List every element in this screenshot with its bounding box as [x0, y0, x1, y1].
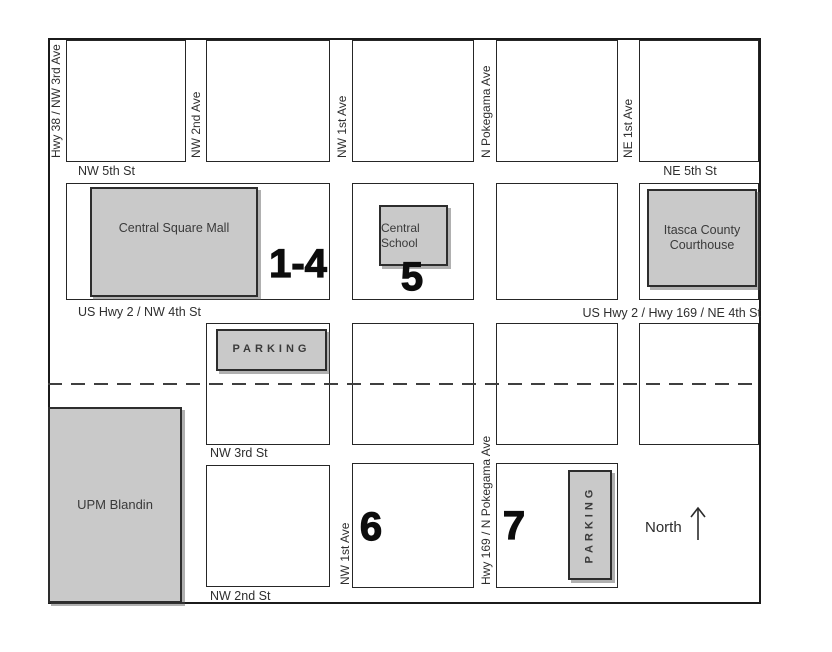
street-label-ne-5th-st: NE 5th St	[660, 164, 720, 178]
building-label: UPM Blandin	[77, 497, 153, 513]
street-label-us-hwy2-hwy169-ne-4th-st: US Hwy 2 / Hwy 169 / NE 4th St	[582, 306, 761, 320]
city-block	[66, 40, 186, 162]
avenue-label-n-pokegama-ave: N Pokegama Ave	[480, 65, 493, 158]
city-block	[206, 40, 330, 162]
building-label: Central School	[381, 221, 446, 250]
building-central-square-mall: Central Square Mall	[90, 187, 258, 297]
marker-sites-1-4: 1-4	[266, 243, 330, 285]
avenue-label-hwy38-nw-3rd-ave: Hwy 38 / NW 3rd Ave	[50, 44, 63, 158]
parking-lot-north: PARKING	[216, 329, 327, 371]
city-block	[352, 40, 474, 162]
marker-site-7: 7	[494, 505, 534, 547]
avenue-label-ne-1st-ave: NE 1st Ave	[622, 99, 635, 158]
building-label: Central Square Mall	[119, 221, 229, 236]
city-block	[496, 40, 618, 162]
avenue-label-hwy169-n-pokegama-ave: Hwy 169 / N Pokegama Ave	[480, 436, 493, 585]
street-label-nw-3rd-st: NW 3rd St	[210, 446, 268, 460]
city-block	[639, 40, 759, 162]
city-block	[496, 183, 618, 300]
avenue-label-nw-1st-ave-north: NW 1st Ave	[336, 96, 349, 158]
street-label-us-hwy2-nw-4th-st: US Hwy 2 / NW 4th St	[78, 305, 201, 319]
compass-north-label: North	[645, 519, 682, 536]
avenue-label-nw-2nd-ave: NW 2nd Ave	[190, 92, 203, 158]
parking-lot-south: PARKING	[568, 470, 612, 580]
marker-site-6: 6	[351, 506, 391, 548]
dashed-boundary-line	[48, 383, 761, 385]
building-label: Itasca County Courthouse	[649, 223, 755, 253]
marker-site-5: 5	[392, 256, 432, 298]
north-arrow-icon	[688, 505, 708, 543]
building-upm-blandin: UPM Blandin	[48, 407, 182, 603]
parking-label: PARKING	[583, 486, 596, 564]
street-map: Central Square Mall Central School Itasc…	[0, 0, 832, 652]
city-block	[206, 465, 330, 587]
street-label-nw-2nd-st: NW 2nd St	[210, 589, 270, 603]
building-itasca-county-courthouse: Itasca County Courthouse	[647, 189, 757, 287]
parking-label: PARKING	[233, 343, 311, 356]
street-label-nw-5th-st: NW 5th St	[78, 164, 135, 178]
